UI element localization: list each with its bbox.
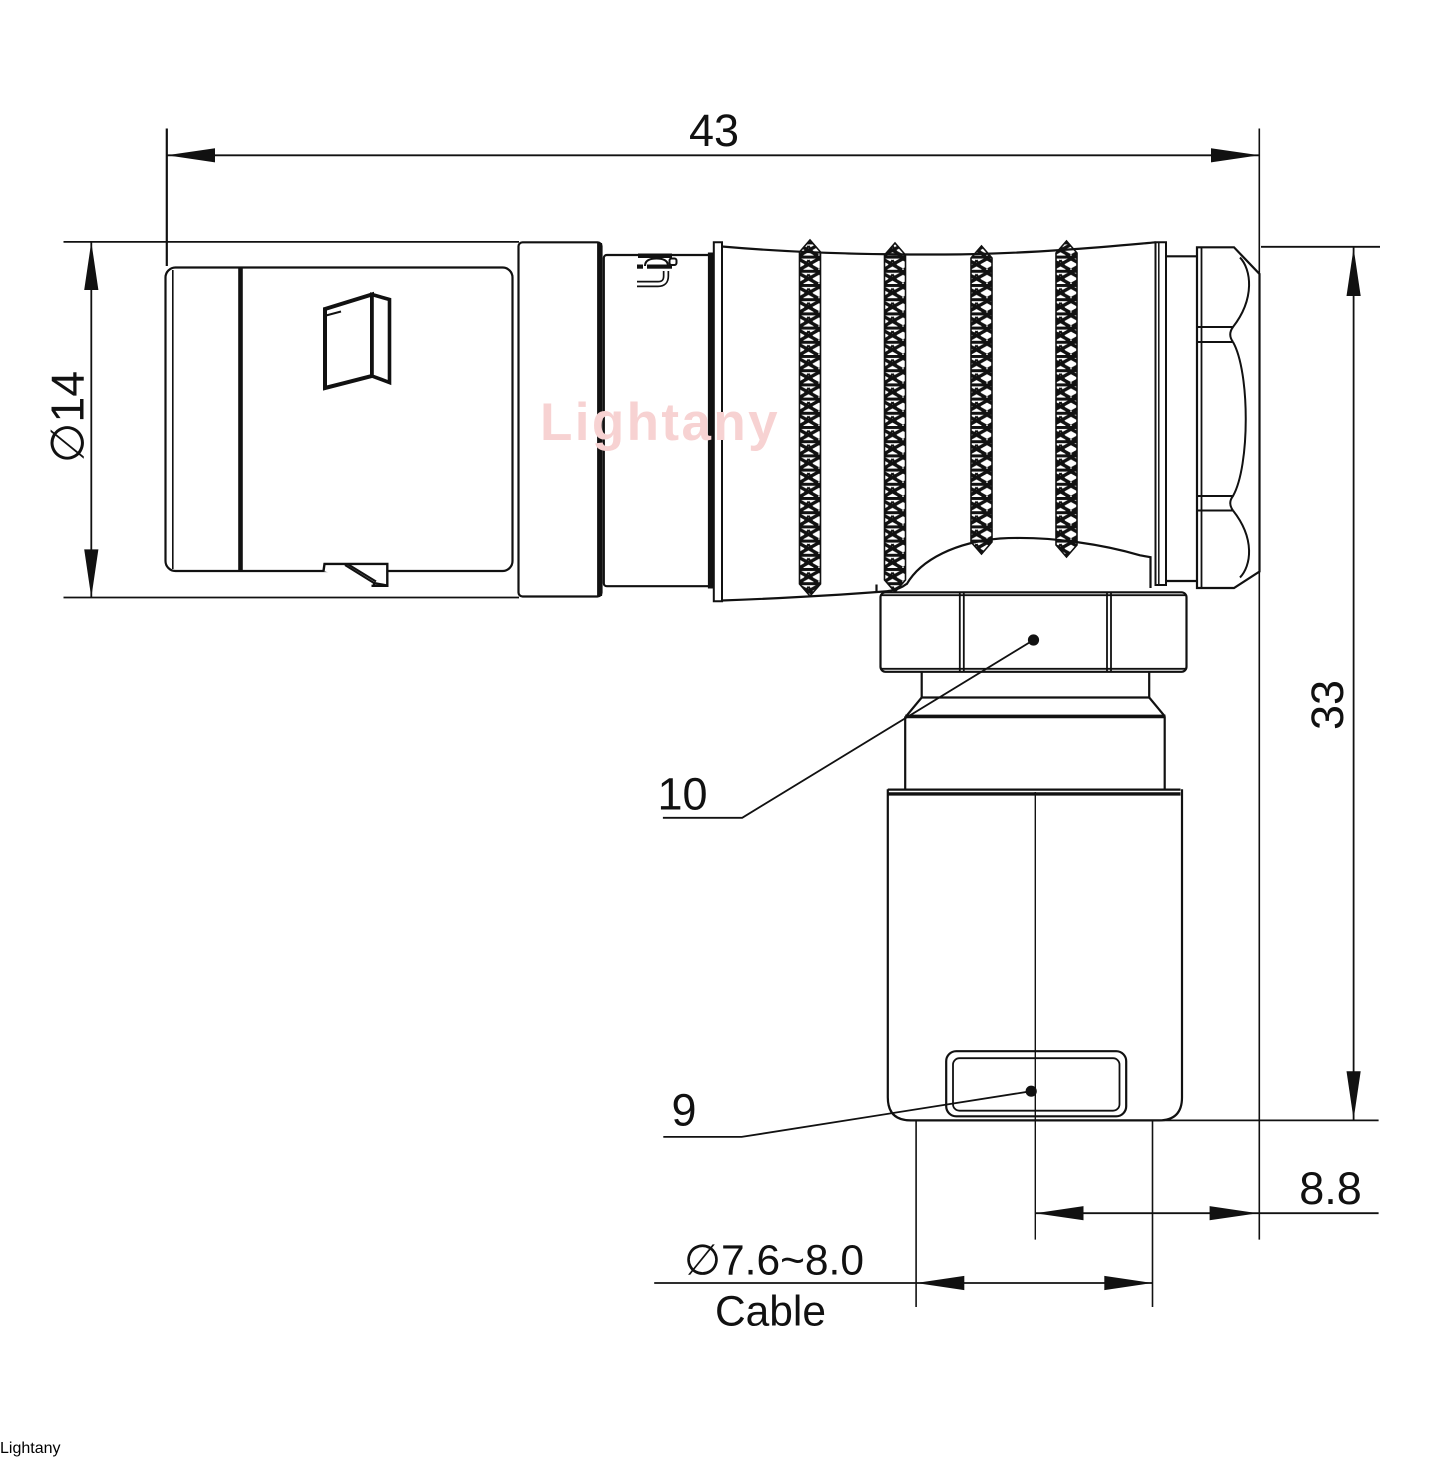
svg-text:9: 9 [671,1085,696,1136]
svg-text:∅7.6~8.0: ∅7.6~8.0 [684,1238,864,1285]
svg-text:33: 33 [1302,680,1353,730]
svg-text:Lightany: Lightany [540,393,780,452]
svg-text:8.8: 8.8 [1299,1163,1362,1214]
svg-text:∅14: ∅14 [42,371,94,463]
svg-text:Cable: Cable [715,1289,826,1336]
svg-text:43: 43 [689,105,739,156]
svg-text:10: 10 [657,769,707,820]
